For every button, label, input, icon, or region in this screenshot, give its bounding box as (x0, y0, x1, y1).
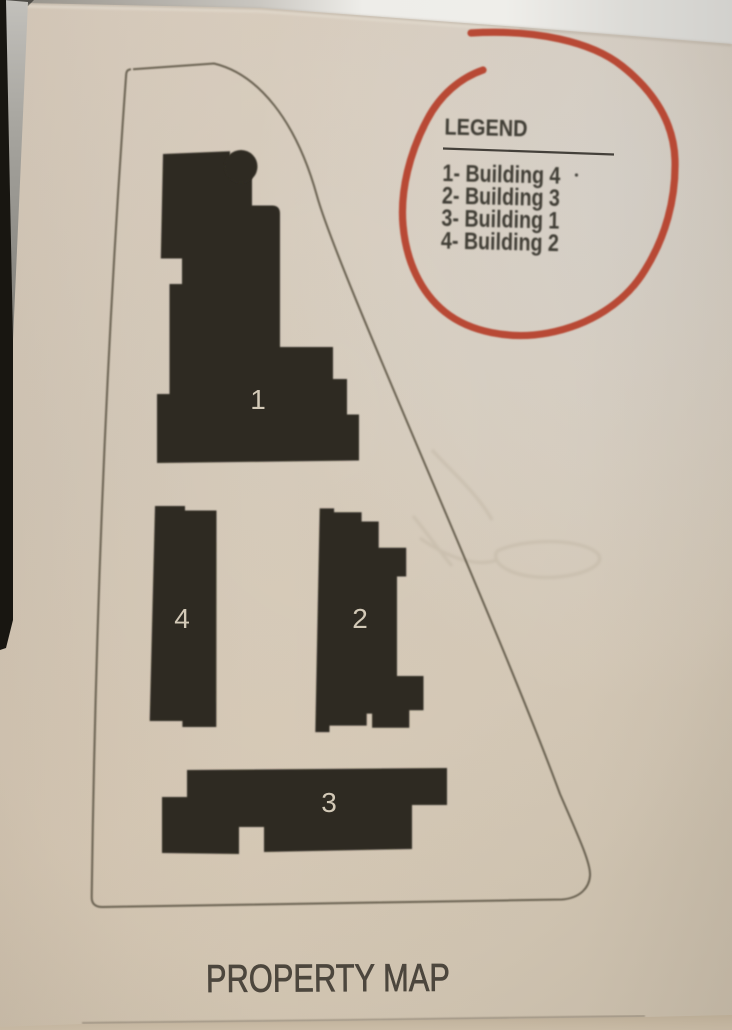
svg-text:4- Building 2: 4- Building 2 (441, 227, 560, 257)
svg-text:1: 1 (250, 384, 266, 415)
svg-text:2: 2 (352, 603, 368, 634)
svg-text:PROPERTY MAP: PROPERTY MAP (206, 957, 450, 1001)
svg-text:4: 4 (174, 603, 190, 634)
svg-text:LEGEND: LEGEND (444, 114, 528, 142)
svg-text:3: 3 (321, 787, 337, 818)
